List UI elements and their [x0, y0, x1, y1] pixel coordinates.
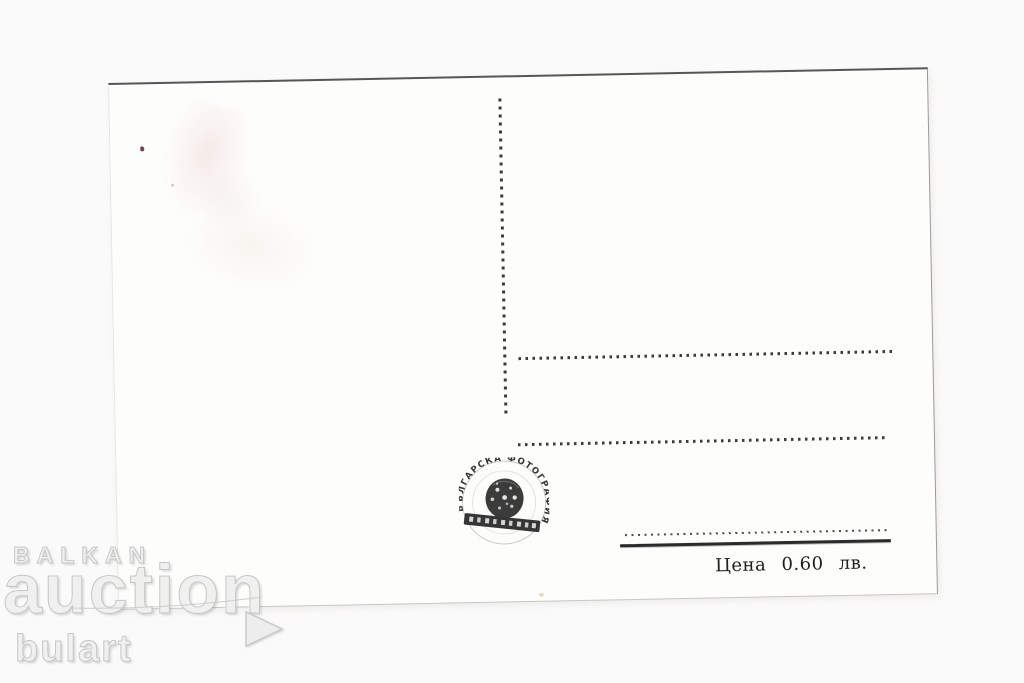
- stamp-emblem: [484, 477, 526, 521]
- price-rule-line: [620, 539, 891, 547]
- watermark-bulart: bulart: [15, 630, 133, 668]
- photography-stamp: БЪЛГАРСКА ФОТОГРАФИЯ: [458, 457, 550, 549]
- price-label: Цена 0.60 лв.: [675, 552, 907, 577]
- address-dotted-line-3: [625, 529, 890, 536]
- postcard-back: Цена 0.60 лв. БЪЛГАРСКА ФОТОГРАФИЯ: [108, 67, 938, 610]
- address-dotted-line-1: [518, 350, 892, 360]
- stain-speck-small: [171, 184, 174, 187]
- stain-speck: [140, 146, 144, 151]
- stamp-art: БЪЛГАРСКА ФОТОГРАФИЯ: [458, 457, 550, 549]
- address-dotted-line-2: [518, 436, 887, 446]
- stain-mark: [109, 90, 366, 336]
- paper-speck: [539, 593, 544, 597]
- center-dotted-divider: [498, 98, 507, 415]
- play-triangle-icon: [244, 610, 284, 648]
- auction-photo: Цена 0.60 лв. БЪЛГАРСКА ФОТОГРАФИЯ: [0, 0, 1024, 683]
